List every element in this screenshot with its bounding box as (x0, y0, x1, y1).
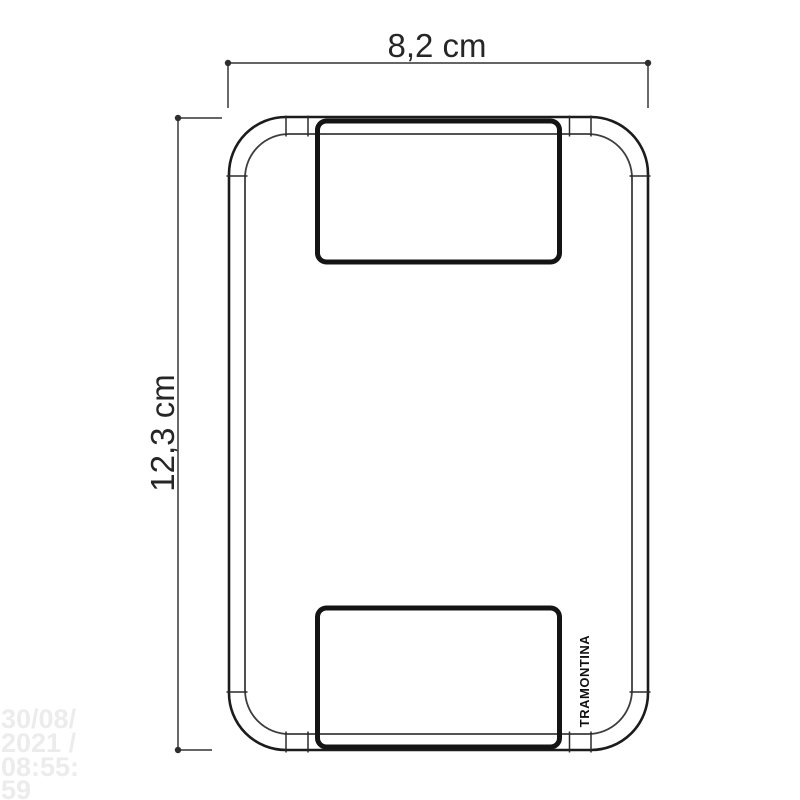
height-dimension-endpoint-top (175, 115, 181, 121)
technical-drawing-page: 8,2 cm 12,3 cm (0, 0, 800, 800)
width-dimension-endpoint-right (645, 60, 651, 66)
width-dimension-endpoint-left (225, 60, 231, 66)
plate-inner-edge (245, 134, 632, 734)
width-dimension: 8,2 cm (225, 27, 651, 108)
wall-plate-technical-drawing: 8,2 cm 12,3 cm (0, 0, 800, 800)
height-dimension-label: 12,3 cm (144, 374, 181, 491)
watermark-line: 59 (1, 775, 31, 800)
height-dimension: 12,3 cm (144, 115, 222, 753)
timestamp-watermark: 30/08/ 2021 / 08:55: 59 (1, 704, 79, 800)
module-opening-bottom (318, 608, 560, 747)
module-opening-top (318, 121, 560, 262)
width-dimension-label: 8,2 cm (387, 27, 486, 64)
brand-logo-text: TRAMONTINA (577, 635, 592, 727)
wall-plate-outline: TRAMONTINA (227, 116, 651, 753)
height-dimension-endpoint-bottom (175, 747, 181, 753)
